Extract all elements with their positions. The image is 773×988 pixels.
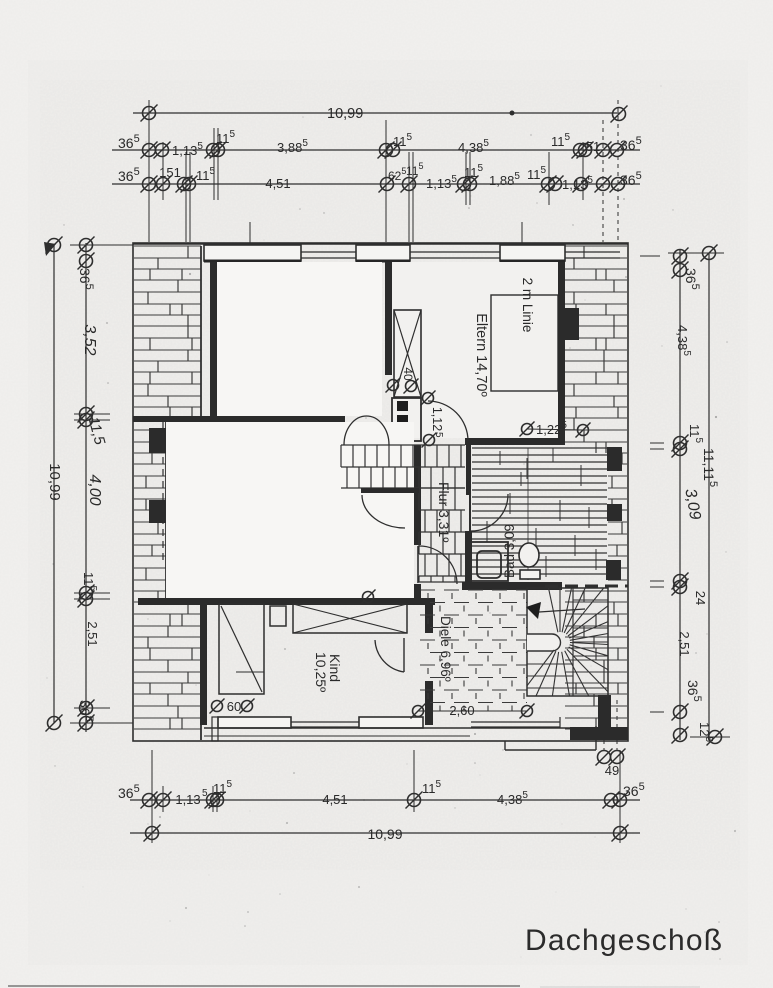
svg-text:24: 24	[693, 591, 708, 605]
svg-text:Dachgeschoß: Dachgeschoß	[525, 924, 723, 957]
svg-text:10,99: 10,99	[46, 463, 63, 501]
svg-text:1,12: 1,12	[430, 407, 444, 431]
svg-text:2 m Linie: 2 m Linie	[520, 278, 535, 333]
svg-text:40: 40	[401, 367, 415, 381]
svg-text:51: 51	[586, 139, 600, 154]
svg-text:Flur 3,31º: Flur 3,31º	[436, 482, 452, 542]
svg-text:2,51: 2,51	[677, 631, 692, 656]
svg-text:1,13: 1,13	[175, 792, 200, 807]
svg-text:2,51: 2,51	[85, 621, 100, 646]
svg-text:Diele 6,96º: Diele 6,96º	[438, 616, 453, 682]
svg-text:4,51: 4,51	[265, 176, 290, 191]
svg-text:10,25º: 10,25º	[313, 652, 329, 692]
svg-text:4,00: 4,00	[86, 474, 103, 505]
svg-text:2,60: 2,60	[449, 703, 474, 718]
svg-text:151: 151	[159, 165, 181, 180]
svg-text:Bad 3,09: Bad 3,09	[502, 524, 517, 578]
svg-text:Eltern 14,70º: Eltern 14,70º	[473, 313, 489, 397]
svg-text:10,99: 10,99	[367, 826, 402, 842]
svg-text:5: 5	[202, 788, 208, 799]
svg-text:4,51: 4,51	[322, 792, 347, 807]
svg-text:10,99: 10,99	[327, 106, 363, 122]
svg-text:5: 5	[433, 432, 444, 438]
svg-text:49: 49	[605, 763, 619, 778]
svg-text:3,52: 3,52	[81, 324, 98, 355]
svg-text:60: 60	[227, 699, 241, 714]
